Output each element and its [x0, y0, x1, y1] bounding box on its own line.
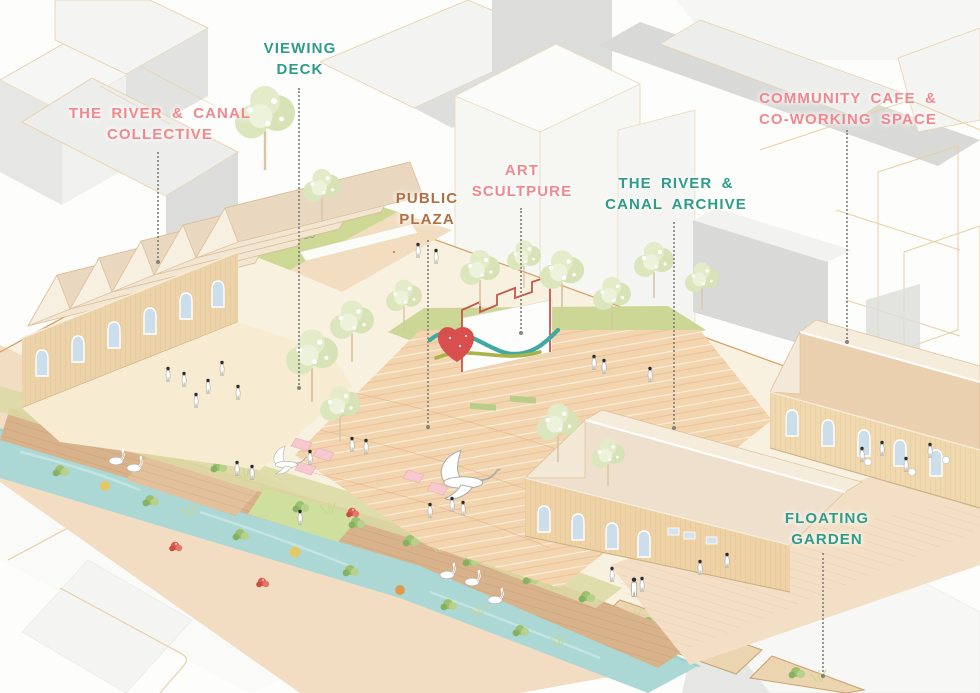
label-floating-garden: FLOATING GARDEN: [785, 508, 869, 550]
label-line: COMMUNITY CAFE &: [759, 90, 937, 107]
label-line: DECK: [277, 61, 324, 78]
label-viewing-deck: VIEWING DECK: [264, 38, 337, 80]
label-line: THE RIVER &: [618, 175, 733, 192]
label-art-sculpture: ART SCULTPURE: [472, 160, 572, 202]
label-line: CO-WORKING SPACE: [759, 111, 937, 128]
leader-collective: [157, 152, 159, 262]
leader-viewing-deck: [298, 88, 300, 388]
label-line: GARDEN: [791, 531, 863, 548]
leader-art-sculpture: [520, 208, 522, 333]
label-line: CANAL ARCHIVE: [605, 196, 747, 213]
label-river-canal-archive: THE RIVER & CANAL ARCHIVE: [605, 173, 747, 215]
label-public-plaza: PUBLIC PLAZA: [396, 188, 458, 230]
label-line: PUBLIC: [396, 190, 458, 207]
label-river-canal-collective: THE RIVER & CANAL COLLECTIVE: [69, 103, 251, 145]
leader-floating-garden: [822, 553, 824, 676]
label-line: SCULTPURE: [472, 183, 572, 200]
label-line: VIEWING: [264, 40, 337, 57]
site-plan-illustration: THE RIVER & CANAL COLLECTIVE VIEWING DEC…: [0, 0, 980, 693]
leader-archive: [673, 222, 675, 428]
label-line: ART: [505, 162, 539, 179]
label-community-cafe: COMMUNITY CAFE & CO-WORKING SPACE: [759, 88, 937, 130]
label-line: FLOATING: [785, 510, 869, 527]
label-line: COLLECTIVE: [107, 126, 213, 143]
label-line: PLAZA: [399, 211, 455, 228]
leader-public-plaza: [427, 240, 429, 427]
label-line: THE RIVER & CANAL: [69, 105, 251, 122]
leader-community-cafe: [846, 130, 848, 342]
